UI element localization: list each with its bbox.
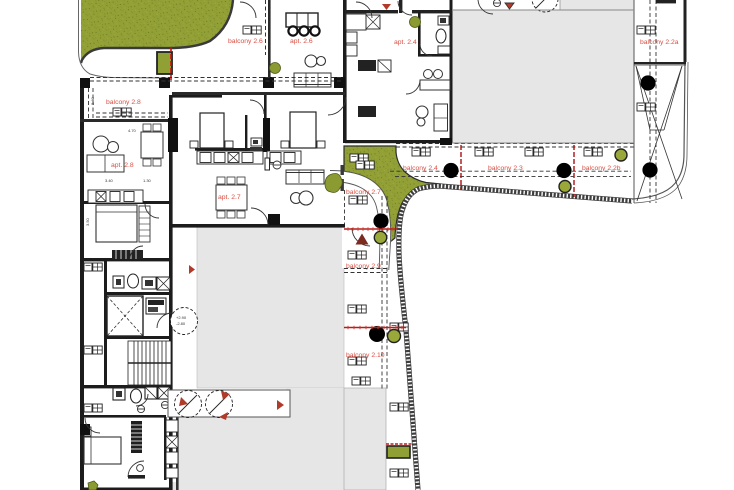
svg-text:apt. 2.4: apt. 2.4 [394,39,417,46]
svg-text:3.50: 3.50 [85,217,90,226]
svg-text:balcony 2.8: balcony 2.8 [106,99,141,106]
svg-text:balcony 2.3: balcony 2.3 [488,165,523,172]
svg-text:1.30: 1.30 [143,178,152,183]
svg-text:2.40: 2.40 [90,96,95,105]
svg-text:3.40: 3.40 [105,178,114,183]
svg-text:apt. 2.7: apt. 2.7 [218,194,241,201]
svg-text:balcony 2.9: balcony 2.9 [346,263,381,270]
svg-text:balcony 2.6: balcony 2.6 [228,38,263,45]
svg-text:balcony 2.2b: balcony 2.2b [582,165,621,172]
svg-text:+2.90: +2.90 [176,315,187,320]
svg-text:balcony 2.4: balcony 2.4 [403,165,438,172]
svg-text:balcony 2.7: balcony 2.7 [346,189,381,196]
svg-text:apt. 2.6: apt. 2.6 [290,38,313,45]
svg-text:-2.80: -2.80 [176,321,186,326]
svg-text:balcony 2.10: balcony 2.10 [346,352,385,359]
svg-text:4.70: 4.70 [128,128,137,133]
svg-text:apt. 2.8: apt. 2.8 [111,162,134,169]
svg-text:balcony 2.2a: balcony 2.2a [640,39,679,46]
